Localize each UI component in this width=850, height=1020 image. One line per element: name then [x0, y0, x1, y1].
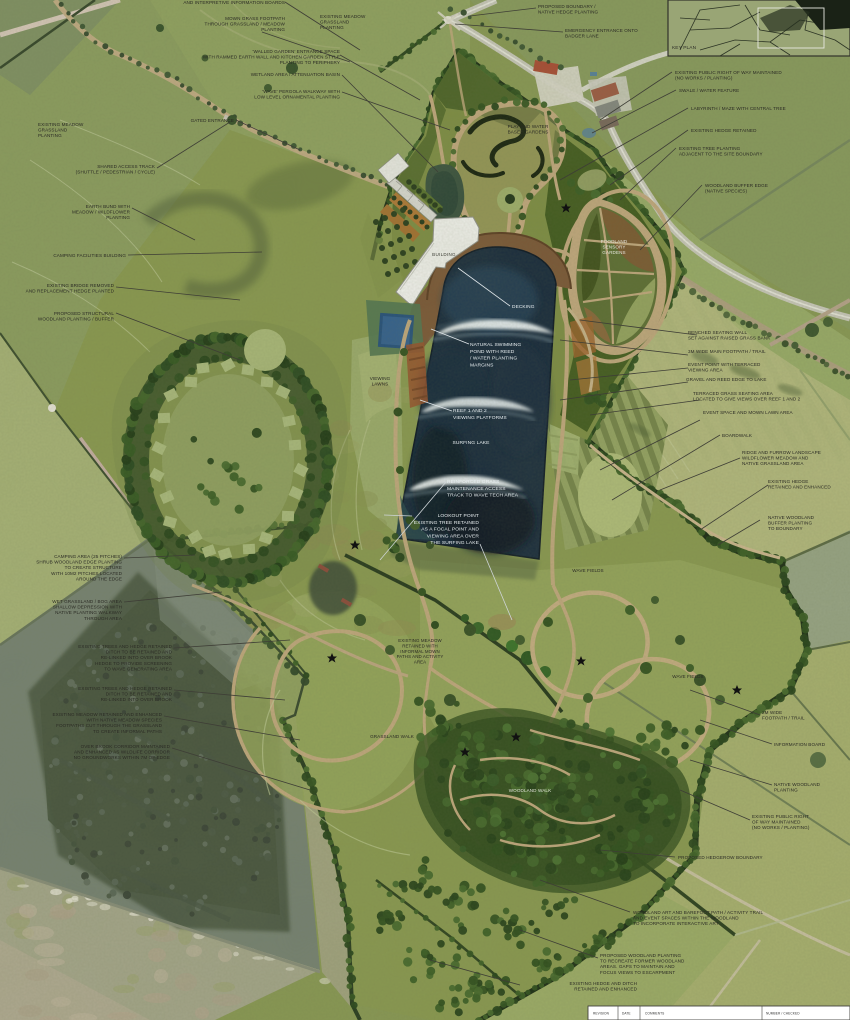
svg-text:NUMBER / CHECKED: NUMBER / CHECKED	[766, 1012, 800, 1016]
svg-text:3M WIDE MAIN FOOTPATH / TRAIL: 3M WIDE MAIN FOOTPATH / TRAIL	[688, 349, 766, 354]
svg-text:WAVE FIELDS: WAVE FIELDS	[672, 674, 703, 679]
svg-text:GATED ENTRANCE: GATED ENTRANCE	[191, 118, 234, 123]
svg-text:BOARDWALK: BOARDWALK	[722, 433, 753, 438]
svg-text:WAVE FIELDS: WAVE FIELDS	[572, 568, 603, 573]
svg-text:PLAY AND WATERBASED GARDENS: PLAY AND WATERBASED GARDENS	[508, 124, 549, 135]
svg-text:DATE: DATE	[622, 1012, 631, 1016]
svg-text:GRASSLAND WALK: GRASSLAND WALK	[370, 734, 415, 739]
svg-text:SURFING LAKE: SURFING LAKE	[452, 440, 490, 446]
svg-text:INFORMATION BOARD: INFORMATION BOARD	[774, 742, 826, 747]
svg-text:GRAVEL AND REED EDGE TO LAKE: GRAVEL AND REED EDGE TO LAKE	[686, 377, 767, 382]
svg-text:AND INTERPRETIVE INFORMATION B: AND INTERPRETIVE INFORMATION BOARDS	[183, 0, 285, 5]
svg-text:CAMPING FACILITIES BUILDING: CAMPING FACILITIES BUILDING	[53, 253, 126, 258]
svg-text:SWALE / WATER FEATURE: SWALE / WATER FEATURE	[679, 88, 739, 93]
svg-text:KEY PLAN: KEY PLAN	[672, 45, 697, 51]
svg-text:DECKING: DECKING	[512, 304, 535, 310]
svg-text:FOODLANDSENSORYGARDENS: FOODLANDSENSORYGARDENS	[601, 239, 628, 255]
svg-text:COMMENTS: COMMENTS	[645, 1012, 664, 1016]
svg-text:EVENT SPACE AND MOWN LAWN AREA: EVENT SPACE AND MOWN LAWN AREA	[703, 410, 794, 415]
svg-text:PROPOSED BOUNDARY /NATIVE HEDG: PROPOSED BOUNDARY /NATIVE HEDGE PLANTING	[538, 4, 599, 15]
svg-text:PROPOSED WOODLAND PLANTINGTO R: PROPOSED WOODLAND PLANTINGTO RECREATE FO…	[600, 953, 685, 975]
svg-text:PROPOSED HEDGEROW BOUNDARY: PROPOSED HEDGEROW BOUNDARY	[678, 855, 763, 860]
svg-text:'WAVE' PERGOLA WALKWAY WITHLOW: 'WAVE' PERGOLA WALKWAY WITHLOW LEVEL ORN…	[254, 89, 340, 100]
svg-text:REVISION: REVISION	[593, 1012, 610, 1016]
svg-text:LABYRINTH / MAZE WITH CENTRAL: LABYRINTH / MAZE WITH CENTRAL TREE	[691, 106, 786, 111]
svg-text:VIEWINGLAWNS: VIEWINGLAWNS	[370, 376, 391, 387]
svg-text:OVER BROOK CORRIDOR MAINTAINED: OVER BROOK CORRIDOR MAINTAINEDAND ENHANC…	[74, 744, 171, 760]
svg-text:EXISTING HEDGE RETAINED: EXISTING HEDGE RETAINED	[691, 128, 757, 133]
svg-text:WETLAND AREA / ATTENUATION BAS: WETLAND AREA / ATTENUATION BASIN	[251, 72, 340, 77]
svg-text:WOODLAND WALK: WOODLAND WALK	[509, 788, 552, 793]
svg-text:EXISTING HEDGE AND DITCHRETAIN: EXISTING HEDGE AND DITCHRETAINED AND ENH…	[570, 981, 638, 992]
